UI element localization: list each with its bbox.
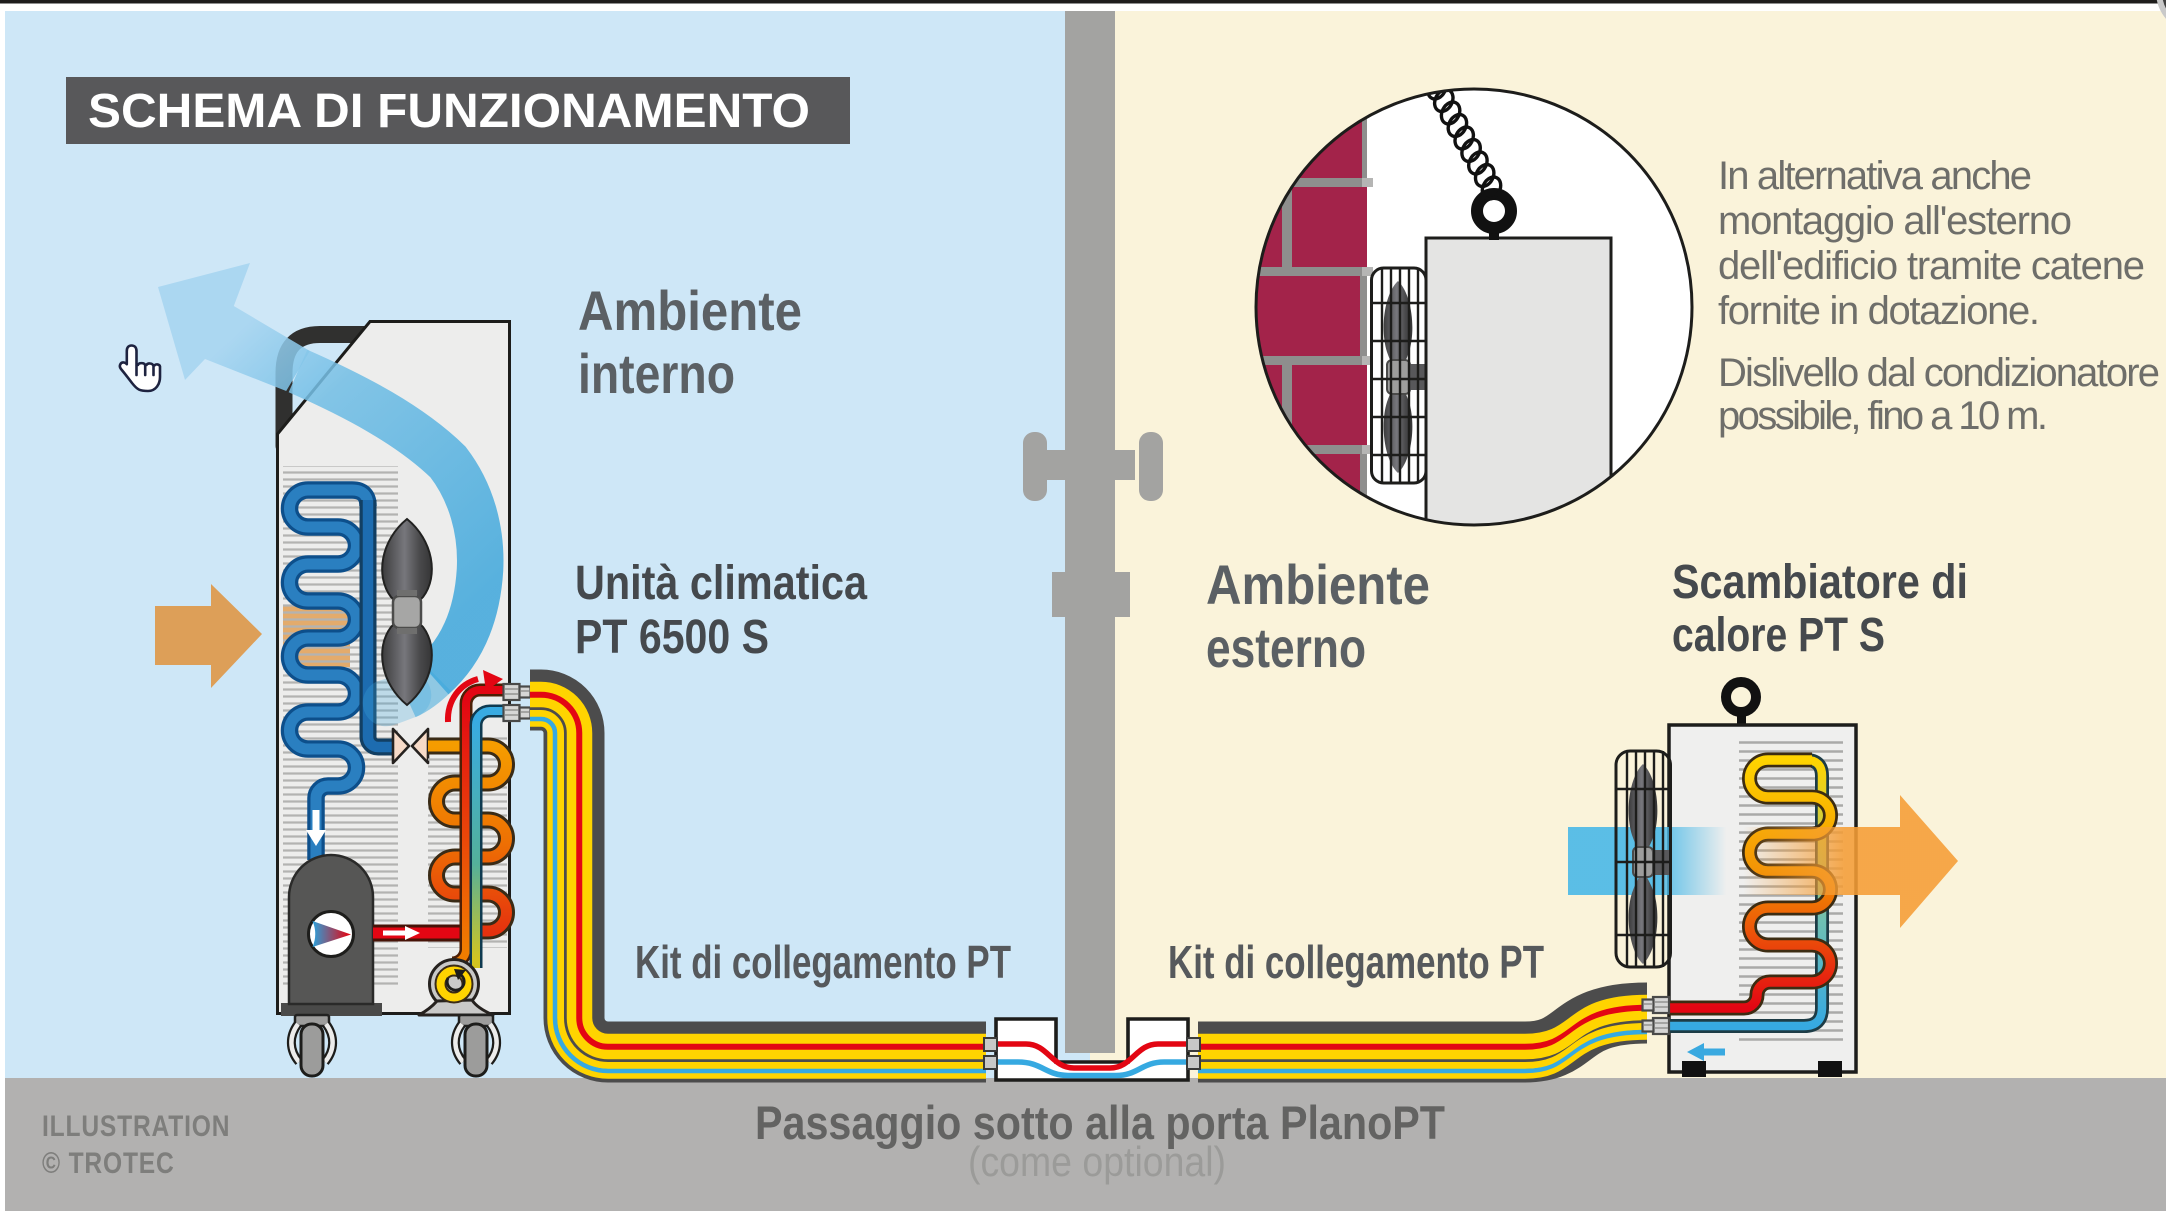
svg-text:Unità climatica: Unità climatica [575,557,867,610]
svg-text:calore PT S: calore PT S [1672,609,1885,662]
svg-text:interno: interno [578,342,735,405]
svg-text:(come optional): (come optional) [968,1138,1226,1185]
svg-text:fornite in dotazione.: fornite in dotazione. [1718,289,2040,333]
svg-text:Kit di collegamento PT: Kit di collegamento PT [1168,936,1544,988]
svg-text:Kit di collegamento PT: Kit di collegamento PT [635,936,1011,988]
svg-text:In alternativa anche: In alternativa anche [1718,154,2032,198]
svg-text:montaggio all'esterno: montaggio all'esterno [1718,199,2072,243]
svg-text:Dislivello dal condizionatore: Dislivello dal condizionatore [1718,351,2160,395]
svg-text:PT 6500 S: PT 6500 S [575,611,769,664]
svg-text:Ambiente: Ambiente [578,279,802,342]
svg-text:ILLUSTRATION: ILLUSTRATION [42,1109,230,1143]
svg-text:SCHEMA DI FUNZIONAMENTO: SCHEMA DI FUNZIONAMENTO [88,85,810,138]
svg-text:Scambiatore di: Scambiatore di [1672,556,1968,609]
svg-text:esterno: esterno [1206,616,1366,679]
svg-text:© TROTEC: © TROTEC [42,1146,175,1180]
svg-text:Ambiente: Ambiente [1206,553,1430,616]
svg-text:dell'edificio tramite catene: dell'edificio tramite catene [1718,244,2145,288]
svg-text:possibile, fino a 10 m.: possibile, fino a 10 m. [1718,394,2048,438]
